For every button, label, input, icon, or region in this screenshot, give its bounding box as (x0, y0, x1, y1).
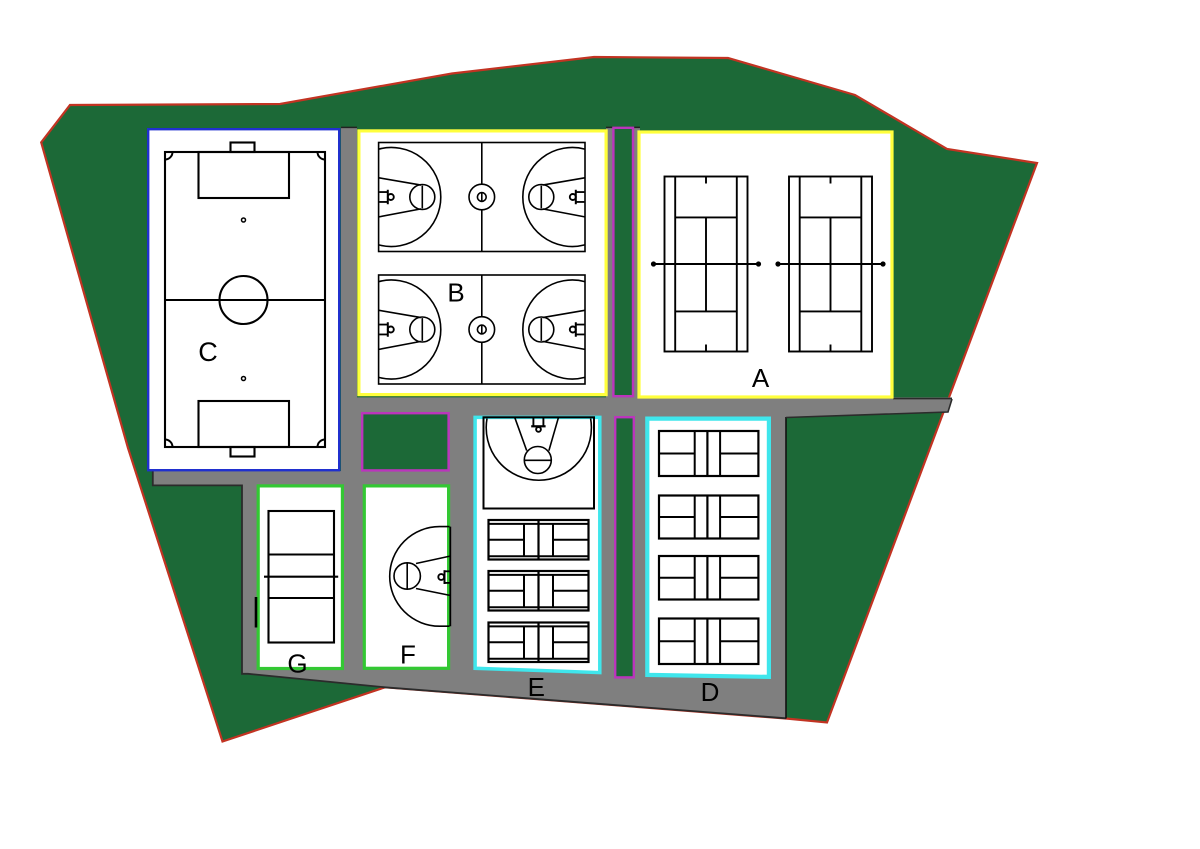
svg-text:D: D (701, 677, 720, 707)
svg-text:B: B (447, 278, 464, 308)
svg-text:A: A (752, 363, 770, 393)
svg-text:E: E (528, 672, 545, 702)
svg-text:G: G (287, 649, 307, 679)
svg-text:C: C (198, 337, 218, 367)
svg-text:F: F (400, 640, 416, 670)
